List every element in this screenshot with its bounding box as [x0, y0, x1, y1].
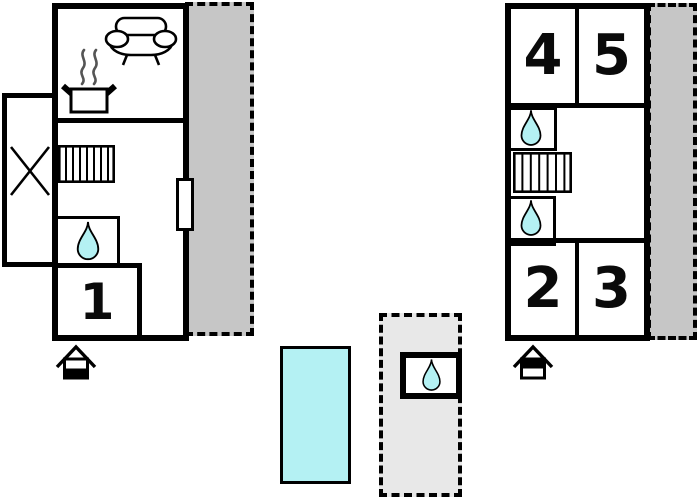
stairs-icon — [513, 152, 572, 193]
utility-yard — [379, 313, 462, 497]
room-label-1: 1 — [80, 277, 115, 327]
interior-wall-living — [58, 118, 183, 123]
room-1-box: 1 — [52, 263, 142, 341]
room-label-4: 4 — [524, 28, 563, 84]
room-label-3: 3 — [592, 261, 631, 317]
building-left: 1 — [52, 3, 189, 341]
entrance-house-icon — [512, 344, 554, 382]
terrace-right — [647, 3, 697, 340]
utility-shed — [400, 352, 462, 399]
room-label-5: 5 — [592, 28, 631, 84]
floor-plan: 1 4 5 — [0, 0, 700, 500]
room-label-2: 2 — [524, 261, 563, 317]
room-4-box: 4 — [511, 9, 575, 103]
terrace-door — [176, 178, 194, 231]
cooking-pot-icon — [60, 48, 118, 114]
water-drop-icon — [518, 109, 544, 148]
water-drop-icon — [74, 220, 102, 263]
water-drop-icon — [518, 199, 544, 238]
room-3-box: 3 — [579, 243, 644, 335]
room-5-box: 5 — [579, 9, 644, 103]
building-right: 4 5 2 3 — [505, 3, 650, 341]
annex-carport — [2, 93, 57, 267]
entrance-house-icon — [55, 344, 97, 382]
stairs-icon — [58, 145, 115, 183]
x-marker-icon — [7, 144, 52, 198]
water-drop-icon — [420, 358, 443, 393]
terrace-left — [185, 2, 254, 336]
swimming-pool — [280, 346, 351, 484]
room-2-box: 2 — [511, 243, 575, 335]
